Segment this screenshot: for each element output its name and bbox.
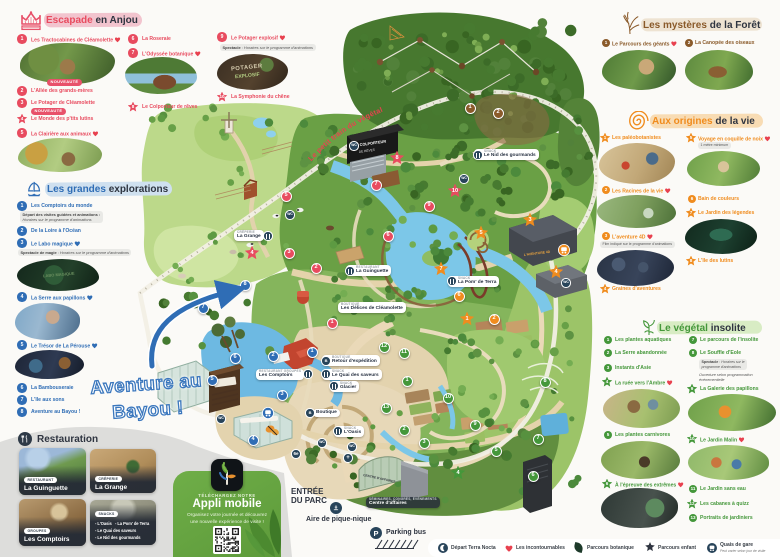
- svg-text:Le petit train du végétal: Le petit train du végétal: [306, 105, 384, 163]
